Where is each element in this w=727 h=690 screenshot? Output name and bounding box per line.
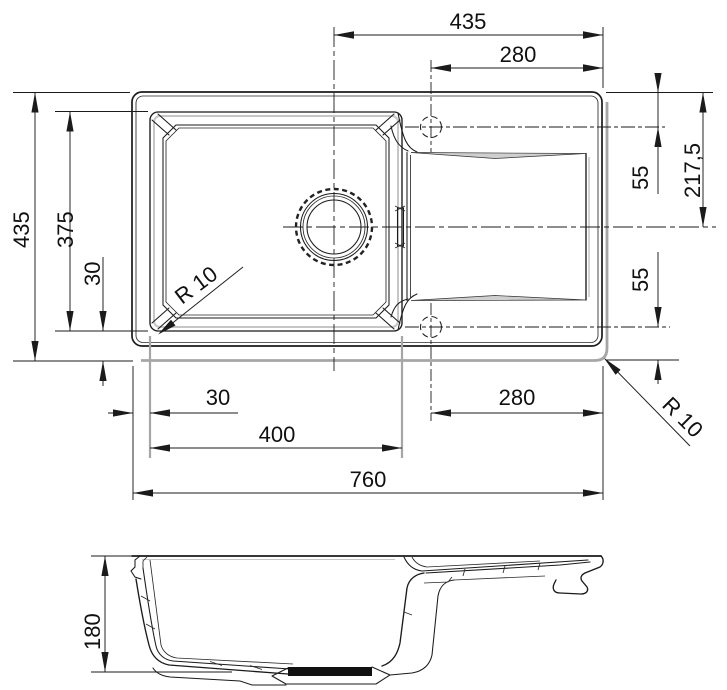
- section-bowl-wall-right: [382, 573, 424, 666]
- section-drain-fitting: [288, 667, 372, 676]
- dim-label-400: 400: [259, 422, 296, 447]
- dim-radius-bowl: R 10: [158, 261, 243, 334]
- dim-label-760: 760: [350, 467, 387, 492]
- dim-label-280-bottom: 280: [499, 385, 536, 410]
- dim-label-30-bottom: 30: [206, 385, 230, 410]
- drainboard: [395, 153, 589, 301]
- dim-left-435: 435: [9, 93, 39, 362]
- dim-right-217-5: 217,5: [680, 93, 707, 228]
- section-view: [131, 556, 603, 685]
- dim-label-280-top: 280: [500, 42, 537, 67]
- dim-label-30-left: 30: [80, 262, 105, 286]
- dimensions-section-view: 180: [80, 556, 232, 672]
- dim-section-180: 180: [80, 556, 109, 672]
- sink-silhouette-shadow: [141, 102, 607, 361]
- dim-label-180: 180: [80, 613, 105, 650]
- drainboard-bottom-slope: [411, 296, 586, 301]
- dim-label-r10-bowl: R 10: [170, 261, 222, 309]
- dim-label-435-left: 435: [9, 211, 34, 248]
- dim-label-55-bottom: 55: [628, 268, 653, 292]
- dim-bottom-400: 400: [150, 422, 402, 452]
- dim-bottom-280: 280: [431, 385, 603, 417]
- sink-drawing-canvas: 435 280 55 217,5 55: [0, 0, 727, 690]
- dim-right-55-bottom: 55: [628, 252, 662, 384]
- dim-top-435: 435: [334, 9, 603, 39]
- section-left-lip-inner: [143, 557, 147, 568]
- dim-bottom-760: 760: [133, 467, 603, 497]
- technical-drawing-page: 435 280 55 217,5 55: [0, 0, 727, 690]
- section-base: [153, 580, 454, 685]
- dim-bottom-30: 30: [108, 385, 238, 417]
- section-drainboard: [404, 556, 603, 594]
- dim-label-r10-sink: R 10: [657, 392, 708, 443]
- dim-right-55-top: 55: [628, 73, 662, 194]
- dim-label-55-top: 55: [628, 166, 653, 190]
- dim-left-30: 30: [80, 257, 107, 386]
- dim-label-217-5: 217,5: [680, 143, 705, 198]
- section-left-lip-outer: [131, 556, 141, 579]
- section-bowl-wall-left: [136, 560, 293, 674]
- drainboard-top-slope: [411, 153, 586, 159]
- section-extension-lines: [91, 556, 232, 672]
- top-view: [132, 27, 716, 421]
- dim-left-375: 375: [53, 112, 78, 332]
- dim-label-375: 375: [53, 211, 78, 248]
- dim-top-280: 280: [431, 42, 603, 72]
- dim-label-435-top: 435: [450, 9, 487, 34]
